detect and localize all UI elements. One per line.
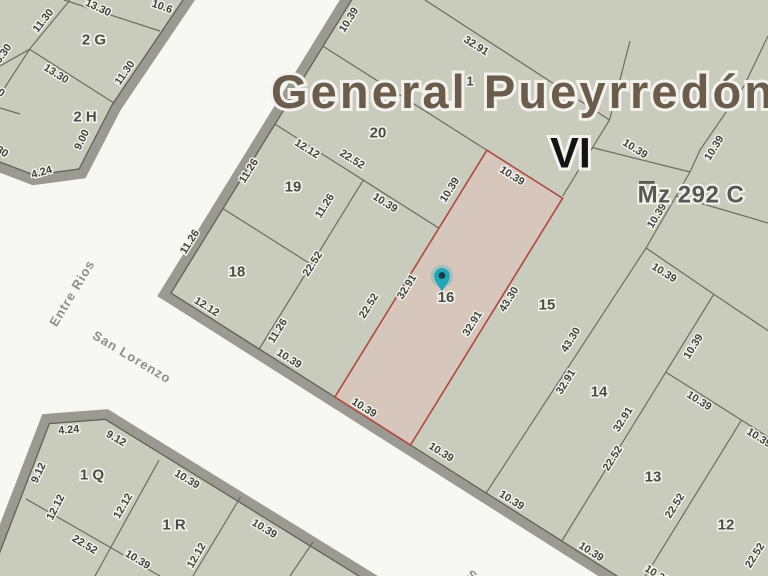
svg-text:1: 1: [466, 74, 473, 89]
svg-text:15: 15: [539, 297, 556, 314]
svg-text:19: 19: [285, 179, 302, 196]
svg-text:1 Q: 1 Q: [80, 467, 105, 484]
svg-text:13: 13: [645, 469, 662, 486]
svg-text:12: 12: [718, 517, 735, 534]
svg-text:16: 16: [438, 289, 455, 306]
svg-text:General Pueyrredón: General Pueyrredón: [271, 65, 768, 118]
svg-text:1 R: 1 R: [162, 517, 186, 534]
svg-text:14: 14: [591, 384, 608, 401]
svg-text:4.24: 4.24: [58, 423, 80, 437]
svg-text:2 G: 2 G: [82, 32, 106, 49]
svg-text:Mz 292 C: Mz 292 C: [638, 182, 745, 209]
svg-text:2 H: 2 H: [73, 109, 96, 126]
svg-text:20: 20: [370, 125, 387, 142]
svg-text:18: 18: [229, 264, 246, 281]
svg-text:VI: VI: [550, 130, 591, 178]
